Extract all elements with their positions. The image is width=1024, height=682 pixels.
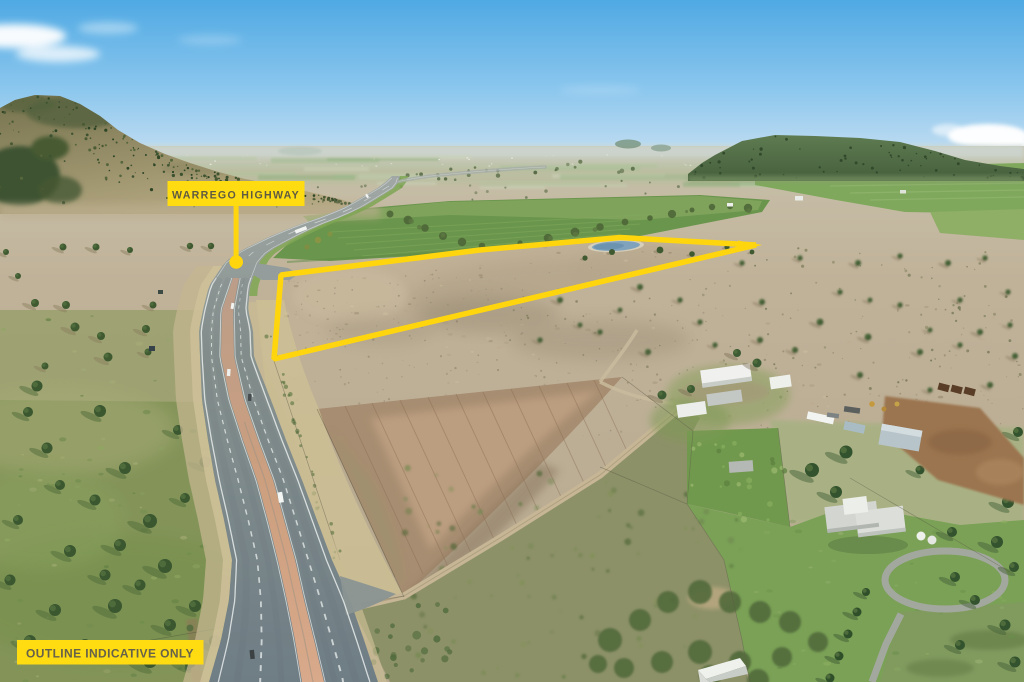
svg-text:OUTLINE INDICATIVE ONLY: OUTLINE INDICATIVE ONLY (26, 647, 194, 661)
svg-text:WARREGO HIGHWAY: WARREGO HIGHWAY (172, 190, 300, 202)
